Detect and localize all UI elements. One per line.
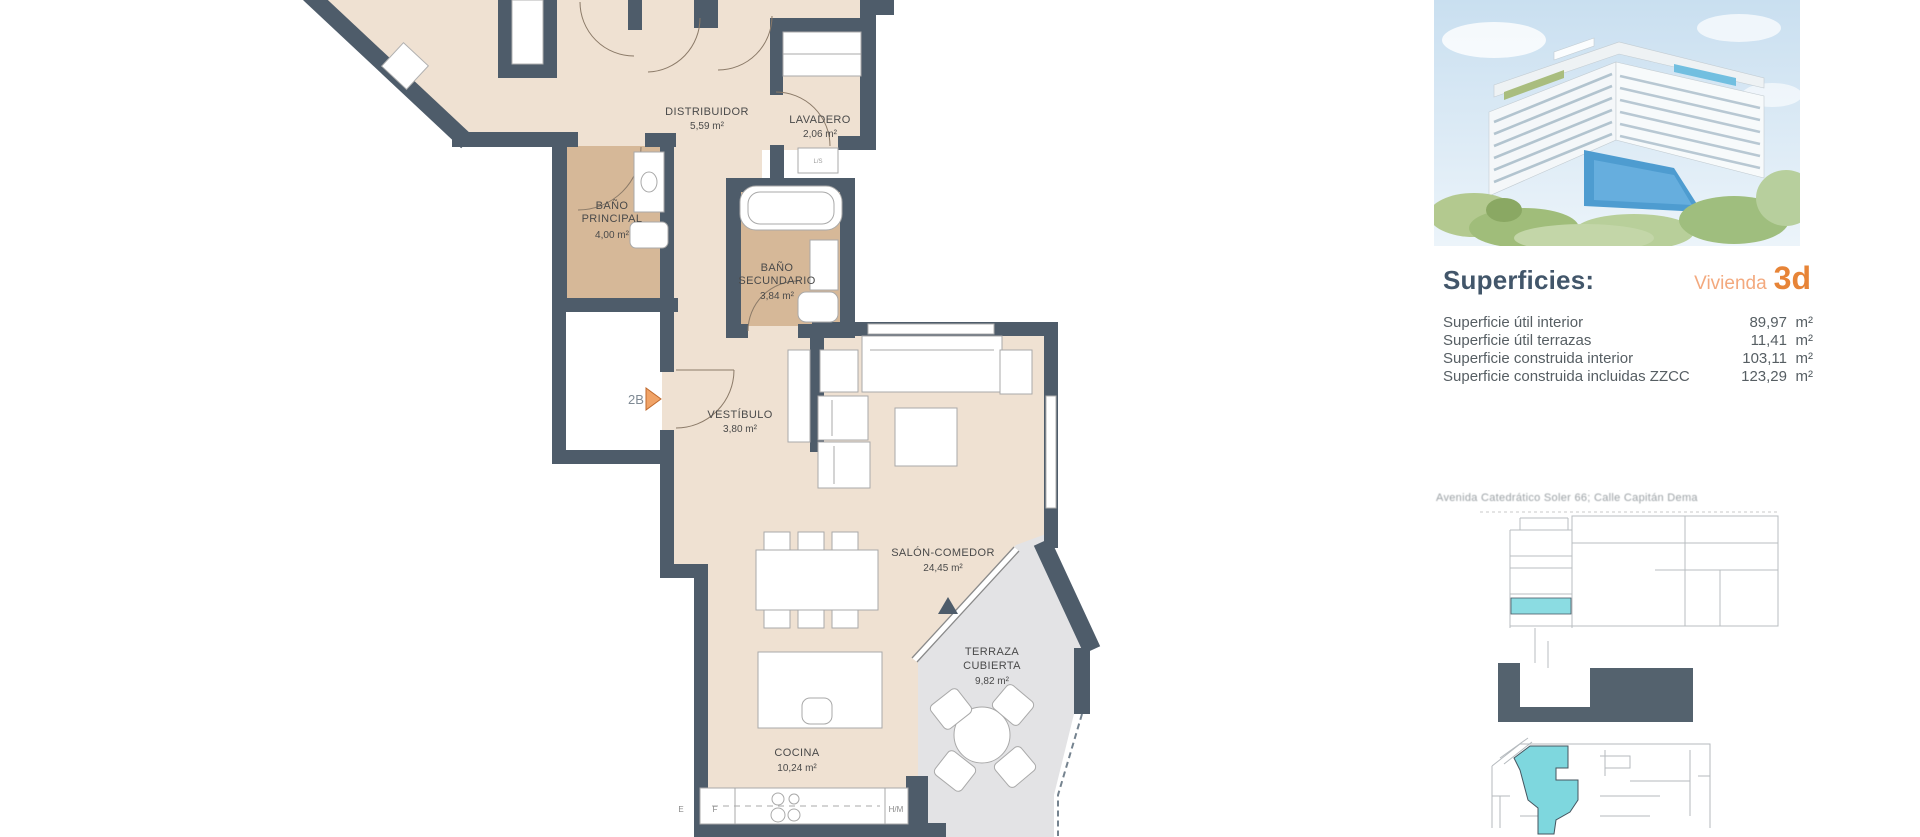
toilet-secundario [798, 292, 838, 322]
svg-text:10,24 m²: 10,24 m² [777, 763, 817, 774]
building-render [1434, 0, 1800, 246]
highlighted-floor [1511, 598, 1571, 614]
chair [764, 532, 790, 550]
svg-text:PRINCIPAL: PRINCIPAL [582, 213, 643, 225]
superficies-header: Superficies: Vivienda 3d [1443, 260, 1811, 297]
window-salon-right [1046, 396, 1056, 508]
label-cocina: COCINA [774, 747, 819, 759]
table-row: Superficie construida interior 103,11 m² [1443, 350, 1813, 368]
sofa [862, 336, 1002, 392]
side-table-left [820, 350, 858, 392]
armchair-2 [818, 442, 870, 488]
armchair-1 [818, 396, 868, 440]
cloud [1442, 22, 1546, 58]
label-lavadero: LAVADERO [789, 114, 851, 126]
unit-marker-label: 2B [628, 392, 644, 407]
counter-label-f: F [713, 805, 718, 814]
toilet-principal [630, 222, 668, 248]
unit-marker: 2B [628, 388, 661, 410]
vanity-principal [634, 152, 664, 212]
superficies-table: Superficie útil interior 89,97 m² Superf… [1443, 314, 1813, 386]
label-distribuidor: DISTRIBUIDOR [665, 106, 749, 118]
window-salon-top [868, 324, 994, 334]
washer-label: L/S [813, 159, 822, 165]
section-outline [1510, 516, 1778, 668]
superficies-title: Superficies: [1443, 265, 1594, 296]
dining-table [756, 550, 878, 610]
counter-label-e: E [678, 805, 683, 814]
chair [832, 610, 858, 628]
label-bano-secundario: BAÑO [761, 261, 794, 274]
address-line: Avenida Catedrático Soler 66; Calle Capi… [1436, 492, 1811, 504]
coffee-table [895, 408, 957, 466]
svg-text:24,45 m²: 24,45 m² [923, 563, 963, 574]
wardrobe [788, 350, 810, 442]
chair [798, 610, 824, 628]
table-row: Superficie útil interior 89,97 m² [1443, 314, 1813, 332]
label-terraza: TERRAZA [965, 646, 1019, 658]
closet-top-room [512, 0, 543, 64]
floor-plan: 2B DISTRIBUIDOR 5,59 m² LAVADERO 2,06 m²… [0, 0, 1120, 837]
label-salon: SALÓN-COMEDOR [891, 546, 995, 559]
label-vestibulo: VESTÍBULO [707, 408, 772, 421]
vivienda-number: 3d [1774, 260, 1811, 297]
svg-text:2,06 m²: 2,06 m² [803, 129, 838, 140]
unit-marker-arrow-icon [646, 388, 661, 410]
counter-label-hm: H/M [889, 805, 904, 814]
svg-text:5,59 m²: 5,59 m² [690, 121, 725, 132]
svg-text:CUBIERTA: CUBIERTA [963, 660, 1021, 672]
svg-text:9,82 m²: 9,82 m² [975, 676, 1010, 687]
side-table-right [1000, 350, 1032, 394]
kitchen-island [758, 652, 882, 728]
svg-text:3,80 m²: 3,80 m² [723, 424, 758, 435]
floorplan-sheet: 2B DISTRIBUIDOR 5,59 m² LAVADERO 2,06 m²… [0, 0, 1920, 837]
section-diagram [1480, 508, 1780, 740]
label-bano-principal: BAÑO [596, 199, 629, 212]
svg-text:3,84 m²: 3,84 m² [760, 291, 795, 302]
highlighted-unit [1514, 746, 1578, 834]
table-row: Superficie útil terrazas 11,41 m² [1443, 332, 1813, 350]
table-row: Superficie construida incluidas ZZCC 123… [1443, 368, 1813, 386]
chair [764, 610, 790, 628]
chair [832, 532, 858, 550]
vivienda-label: Vivienda [1694, 273, 1767, 295]
chair [798, 532, 824, 550]
section-base [1498, 663, 1693, 722]
key-plan [1480, 736, 1770, 837]
svg-text:4,00 m²: 4,00 m² [595, 230, 630, 241]
cloud [1697, 14, 1781, 42]
svg-text:SECUNDARIO: SECUNDARIO [738, 275, 815, 287]
